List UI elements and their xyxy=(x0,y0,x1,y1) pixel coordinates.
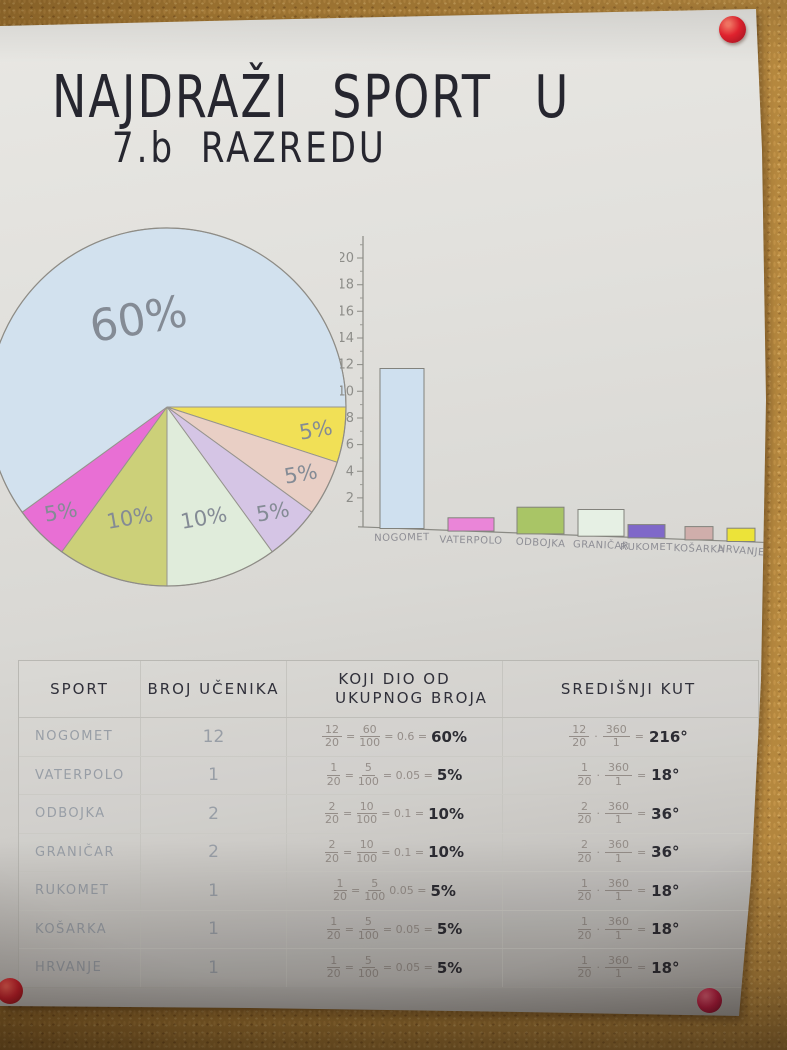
bar-RUKOMET xyxy=(628,525,665,538)
fraction: 1220 xyxy=(322,724,342,750)
equals-sign: = xyxy=(345,923,354,936)
fraction: 5100 xyxy=(358,762,379,788)
angle-result: 216° xyxy=(649,728,688,746)
fraction: 3601 xyxy=(605,955,632,981)
decimal-step: = 0.05 = xyxy=(383,923,433,936)
pie-chart: 5%5%5%10%10%5%60% xyxy=(0,214,362,594)
cell-broj-ucenika: 2 xyxy=(141,834,287,872)
fraction: 5100 xyxy=(358,955,379,981)
bar-label-NOGOMET: NOGOMET xyxy=(374,532,430,544)
cell-koji-dio: 120 = 5100 = 0.05 = 5% xyxy=(287,911,503,949)
percent-result: 5% xyxy=(430,882,455,900)
fraction: 120 xyxy=(327,955,341,981)
decimal-step: = 0.05 = xyxy=(383,961,433,974)
y-tick-label: 2 xyxy=(346,491,354,506)
percent-result: 5% xyxy=(437,920,462,938)
fraction: 120 xyxy=(327,762,341,788)
table-header-row: SPORT BROJ UČENIKA KOJI DIO OD UKUPNOG B… xyxy=(19,661,758,718)
angle-result: 36° xyxy=(651,805,679,823)
cell-sport: NOGOMET xyxy=(19,718,141,756)
equals-sign: = xyxy=(635,730,644,743)
cell-broj-ucenika: 12 xyxy=(141,718,287,756)
cell-sport: VATERPOLO xyxy=(19,757,141,795)
fraction: 10100 xyxy=(356,801,377,827)
bar-ODBOJKA xyxy=(517,507,564,534)
angle-result: 18° xyxy=(651,766,679,784)
table-body: NOGOMET 12 1220 = 60100 = 0.6 = 60% 1220 xyxy=(19,718,758,987)
stats-table: SPORT BROJ UČENIKA KOJI DIO OD UKUPNOG B… xyxy=(18,660,759,988)
col-header-sport: SPORT xyxy=(19,661,141,717)
fraction: 10100 xyxy=(356,839,377,865)
cell-koji-dio: 1220 = 60100 = 0.6 = 60% xyxy=(287,718,503,756)
poster-title-line2: 7.b RAZREDU xyxy=(112,124,387,173)
equals-sign: = xyxy=(637,923,646,936)
col-header-koji-dio-line1: KOJI DIO OD xyxy=(338,670,450,689)
col-header-sredisnji-kut: SREDIŠNJI KUT xyxy=(503,661,754,717)
table-row: RUKOMET 1 120 = 5100 0.05 = 5% 120 xyxy=(19,872,758,911)
y-tick-label: 16 xyxy=(340,304,354,319)
fraction: 5100 xyxy=(364,878,385,904)
fraction: 120 xyxy=(333,878,347,904)
poster: NAJDRAŽI SPORT U 7.b RAZREDU 5%5%5%10%10… xyxy=(0,0,787,1050)
push-pin-top-right xyxy=(719,16,746,43)
equals-sign: = xyxy=(343,807,352,820)
fraction: 3601 xyxy=(605,801,632,827)
cell-broj-ucenika: 2 xyxy=(141,795,287,833)
cell-sport: ODBOJKA xyxy=(19,795,141,833)
angle-result: 18° xyxy=(651,920,679,938)
cell-koji-dio: 220 = 10100 = 0.1 = 10% xyxy=(287,834,503,872)
decimal-step: 0.05 = xyxy=(389,884,426,897)
multiply-dot: · xyxy=(596,769,600,782)
multiply-dot: · xyxy=(596,846,600,859)
y-tick-label: 6 xyxy=(346,438,354,453)
cell-sredisnji-kut: 120 · 3601 = 18° xyxy=(503,949,754,987)
bar-label-ODBOJKA: ODBOJKA xyxy=(515,537,565,551)
equals-sign: = xyxy=(346,730,355,743)
multiply-dot: · xyxy=(596,923,600,936)
fraction: 120 xyxy=(577,762,591,788)
fraction: 3601 xyxy=(605,762,632,788)
equals-sign: = xyxy=(351,884,360,897)
cell-sredisnji-kut: 120 · 3601 = 18° xyxy=(503,911,754,949)
table-row: KOŠARKA 1 120 = 5100 = 0.05 = 5% 120 xyxy=(19,911,758,950)
y-tick-label: 12 xyxy=(340,358,354,373)
fraction: 5100 xyxy=(358,916,379,942)
fraction: 1220 xyxy=(569,724,589,750)
equals-sign: = xyxy=(637,961,646,974)
col-header-broj-ucenika: BROJ UČENIKA xyxy=(141,661,287,717)
equals-sign: = xyxy=(637,769,646,782)
bar-GRANIČAR xyxy=(578,510,624,537)
angle-result: 18° xyxy=(651,959,679,977)
decimal-step: = 0.1 = xyxy=(381,846,424,859)
y-tick-label: 10 xyxy=(340,384,354,399)
y-tick-label: 14 xyxy=(340,331,354,346)
equals-sign: = xyxy=(345,769,354,782)
fraction: 220 xyxy=(577,839,591,865)
col-header-koji-dio-line2: UKUPNOG BROJA xyxy=(335,689,488,708)
decimal-step: = 0.05 = xyxy=(383,769,433,782)
bar-VATERPOLO xyxy=(448,518,494,531)
fraction: 3601 xyxy=(605,839,632,865)
multiply-dot: · xyxy=(596,961,600,974)
cell-broj-ucenika: 1 xyxy=(141,872,287,910)
bar-chart: 2468101214161820NOGOMETVATERPOLOODBOJKAG… xyxy=(340,228,787,563)
cell-sredisnji-kut: 120 · 3601 = 18° xyxy=(503,757,754,795)
cell-koji-dio: 220 = 10100 = 0.1 = 10% xyxy=(287,795,503,833)
multiply-dot: · xyxy=(594,730,598,743)
cell-sredisnji-kut: 220 · 3601 = 36° xyxy=(503,795,754,833)
cell-sport: HRVANJE xyxy=(19,949,141,987)
percent-result: 5% xyxy=(437,959,462,977)
fraction: 3601 xyxy=(605,916,632,942)
y-tick-label: 4 xyxy=(346,464,354,479)
bar-HRVANJE xyxy=(727,528,755,541)
bar-label-RUKOMET: RUKOMET xyxy=(620,542,673,553)
col-header-koji-dio: KOJI DIO OD UKUPNOG BROJA xyxy=(287,661,503,717)
fraction: 120 xyxy=(327,916,341,942)
cell-sport: KOŠARKA xyxy=(19,911,141,949)
percent-result: 10% xyxy=(428,805,464,823)
equals-sign: = xyxy=(637,807,646,820)
equals-sign: = xyxy=(343,846,352,859)
cell-sport: GRANIČAR xyxy=(19,834,141,872)
table-row: NOGOMET 12 1220 = 60100 = 0.6 = 60% 1220 xyxy=(19,718,758,757)
angle-result: 36° xyxy=(651,843,679,861)
decimal-step: = 0.1 = xyxy=(381,807,424,820)
y-tick-label: 20 xyxy=(340,251,354,266)
decimal-step: = 0.6 = xyxy=(384,730,427,743)
cell-sport: RUKOMET xyxy=(19,872,141,910)
bar-KOŠARKA xyxy=(685,527,713,540)
percent-result: 10% xyxy=(428,843,464,861)
cell-broj-ucenika: 1 xyxy=(141,911,287,949)
y-tick-label: 8 xyxy=(346,411,354,426)
fraction: 120 xyxy=(577,955,591,981)
photo-scene: NAJDRAŽI SPORT U 7.b RAZREDU 5%5%5%10%10… xyxy=(0,0,787,1050)
cell-sredisnji-kut: 120 · 3601 = 18° xyxy=(503,872,754,910)
bar-label-HRVANJE: HRVANJE xyxy=(717,543,765,558)
table-row: GRANIČAR 2 220 = 10100 = 0.1 = 10% 220 xyxy=(19,834,758,873)
cell-sredisnji-kut: 1220 · 3601 = 216° xyxy=(503,718,754,756)
poster-title-line1: NAJDRAŽI SPORT U xyxy=(52,62,570,131)
fraction: 220 xyxy=(577,801,591,827)
fraction: 120 xyxy=(577,878,591,904)
angle-result: 18° xyxy=(651,882,679,900)
table-row: VATERPOLO 1 120 = 5100 = 0.05 = 5% 120 xyxy=(19,757,758,796)
push-pin-bottom-right xyxy=(697,988,722,1013)
cell-broj-ucenika: 1 xyxy=(141,949,287,987)
equals-sign: = xyxy=(345,961,354,974)
bar-label-VATERPOLO: VATERPOLO xyxy=(439,535,502,547)
multiply-dot: · xyxy=(596,807,600,820)
fraction: 3601 xyxy=(603,724,630,750)
multiply-dot: · xyxy=(596,884,600,897)
fraction: 220 xyxy=(325,839,339,865)
table-row: HRVANJE 1 120 = 5100 = 0.05 = 5% 120 xyxy=(19,949,758,987)
percent-result: 5% xyxy=(437,766,462,784)
bar-NOGOMET xyxy=(380,369,424,529)
percent-result: 60% xyxy=(431,728,467,746)
equals-sign: = xyxy=(637,884,646,897)
cell-koji-dio: 120 = 5100 0.05 = 5% xyxy=(287,872,503,910)
fraction: 3601 xyxy=(605,878,632,904)
cell-broj-ucenika: 1 xyxy=(141,757,287,795)
cell-koji-dio: 120 = 5100 = 0.05 = 5% xyxy=(287,757,503,795)
table-row: ODBOJKA 2 220 = 10100 = 0.1 = 10% 220 xyxy=(19,795,758,834)
fraction: 220 xyxy=(325,801,339,827)
fraction: 120 xyxy=(577,916,591,942)
y-tick-label: 18 xyxy=(340,278,354,293)
poster-wrap: NAJDRAŽI SPORT U 7.b RAZREDU 5%5%5%10%10… xyxy=(0,0,787,1050)
cell-koji-dio: 120 = 5100 = 0.05 = 5% xyxy=(287,949,503,987)
equals-sign: = xyxy=(637,846,646,859)
cell-sredisnji-kut: 220 · 3601 = 36° xyxy=(503,834,754,872)
fraction: 60100 xyxy=(359,724,380,750)
